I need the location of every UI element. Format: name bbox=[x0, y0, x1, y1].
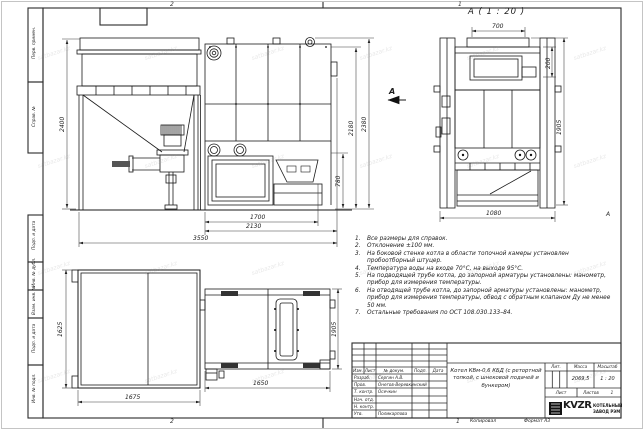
note-item: 2.Отклонение ±100 мм. bbox=[355, 243, 617, 250]
company-name-line2: ЗАВОД РЭМ bbox=[593, 410, 620, 414]
section-arrow-label: А bbox=[389, 88, 395, 96]
tb-name: Осечкин bbox=[378, 390, 397, 394]
tb-col-doc: № докум. bbox=[376, 369, 412, 373]
note-item: 6.На отводящей трубе котла, до запорной … bbox=[355, 288, 617, 310]
tb-col-data: Дата bbox=[429, 369, 447, 373]
note-item: 7.Остальные требования по ОСТ 108.030.13… bbox=[355, 310, 617, 317]
tb-scale-value: 1 : 20 bbox=[594, 377, 621, 382]
note-item: 5.На подводящей трубе котла, до запорной… bbox=[355, 273, 617, 288]
dim-plan-boiler-1650: 1650 bbox=[253, 381, 268, 387]
dim-plan-boiler-1905: 1905 bbox=[332, 322, 338, 337]
stamp-podp-data-2: Подп. и дата bbox=[33, 324, 37, 353]
dim-front-width-2130: 2130 bbox=[246, 224, 261, 230]
document-title: Котел КВм-0,6 КБД (с ретортной топкой, с… bbox=[448, 364, 544, 416]
stamp-inv-dubl: Инв. № дубл. bbox=[33, 258, 37, 287]
stamp-podp-data-1: Подп. и дата bbox=[33, 221, 37, 250]
tb-role: Н. контр. bbox=[354, 405, 374, 409]
section-view-title: А ( 1 : 20 ) bbox=[468, 8, 525, 17]
copied-label: Копировал bbox=[470, 420, 496, 425]
dim-front-height-2400: 2400 bbox=[60, 117, 66, 132]
kvzr-logo: KVZR bbox=[563, 401, 591, 411]
dim-front-width-1700: 1700 bbox=[250, 215, 265, 221]
dim-plan-bunker-1625: 1625 bbox=[58, 322, 64, 337]
dim-plan-bunker-1675: 1675 bbox=[125, 395, 140, 401]
front-view bbox=[70, 38, 352, 211]
tb-col-list: Лист bbox=[364, 369, 376, 373]
zone-letter-right: А bbox=[606, 212, 610, 218]
dim-section-opening-200: 200 bbox=[546, 58, 552, 69]
tb-list-label: Лист bbox=[545, 391, 577, 395]
format-label: Формат А3 bbox=[524, 420, 550, 425]
dim-front-total-3550: 3550 bbox=[193, 236, 208, 242]
section-view-a bbox=[388, 38, 561, 208]
zone-number-top-right: 1 bbox=[458, 2, 462, 8]
tb-col-podp: Подп. bbox=[412, 369, 429, 373]
stamp-perv-primen: Перв. примен. bbox=[33, 27, 37, 59]
tb-listov-value: 1 bbox=[605, 391, 619, 395]
note-item: 4.Температура воды на входе 70°С, на вых… bbox=[355, 266, 617, 273]
dim-section-base-1080: 1080 bbox=[486, 211, 501, 217]
tb-name: Поликарпова bbox=[378, 412, 407, 416]
zone-number-bottom-left: 2 bbox=[170, 419, 174, 425]
stamp-sprav-no: Справ. № bbox=[33, 106, 37, 127]
tb-mass-value: 2069,5 bbox=[567, 377, 594, 382]
plan-view bbox=[72, 270, 335, 388]
tb-mass-label: Масса bbox=[567, 365, 594, 369]
tb-role: Утв. bbox=[354, 412, 363, 416]
company-name-line1: КОТЕЛЬНЫЙ bbox=[593, 404, 622, 408]
tb-scale-label: Масштаб bbox=[594, 365, 621, 369]
dim-front-body-2180: 2180 bbox=[349, 121, 355, 136]
tb-role: Разраб. bbox=[354, 376, 370, 380]
note-item: 1.Все размеры для справок. bbox=[355, 236, 617, 243]
dim-front-furnace-780: 780 bbox=[336, 176, 342, 187]
tb-col-izm: Изм. bbox=[352, 369, 364, 373]
zone-number-top-left: 2 bbox=[170, 2, 174, 8]
dim-section-height-1905: 1905 bbox=[557, 120, 563, 135]
tb-lit-label: Лит. bbox=[545, 365, 567, 369]
tb-name: Сергин А.В. bbox=[378, 376, 404, 380]
stamp-vzam-inv: Взам. инв. № bbox=[33, 286, 37, 315]
tb-listov-label: Листов bbox=[577, 391, 605, 395]
tb-role: Пров. bbox=[354, 383, 366, 387]
drawing-sheet: 2 1 2 1 А Копировал Формат А3 Перв. прим… bbox=[0, 0, 644, 430]
dim-section-top-700: 700 bbox=[492, 24, 503, 30]
tb-role: Т. контр. bbox=[354, 390, 373, 394]
dim-front-full-2380: 2380 bbox=[362, 117, 368, 132]
technical-notes: 1.Все размеры для справок. 2.Отклонение … bbox=[355, 236, 617, 317]
note-item: 3.На боковой стенке котла в области топо… bbox=[355, 251, 617, 266]
tb-role: Нач. отд. bbox=[354, 398, 374, 402]
zone-number-bottom-right: 1 bbox=[456, 419, 460, 425]
stamp-inv-podl: Инв. № подл. bbox=[33, 373, 37, 403]
tb-name: Онегов-Веревкинский bbox=[378, 383, 427, 387]
